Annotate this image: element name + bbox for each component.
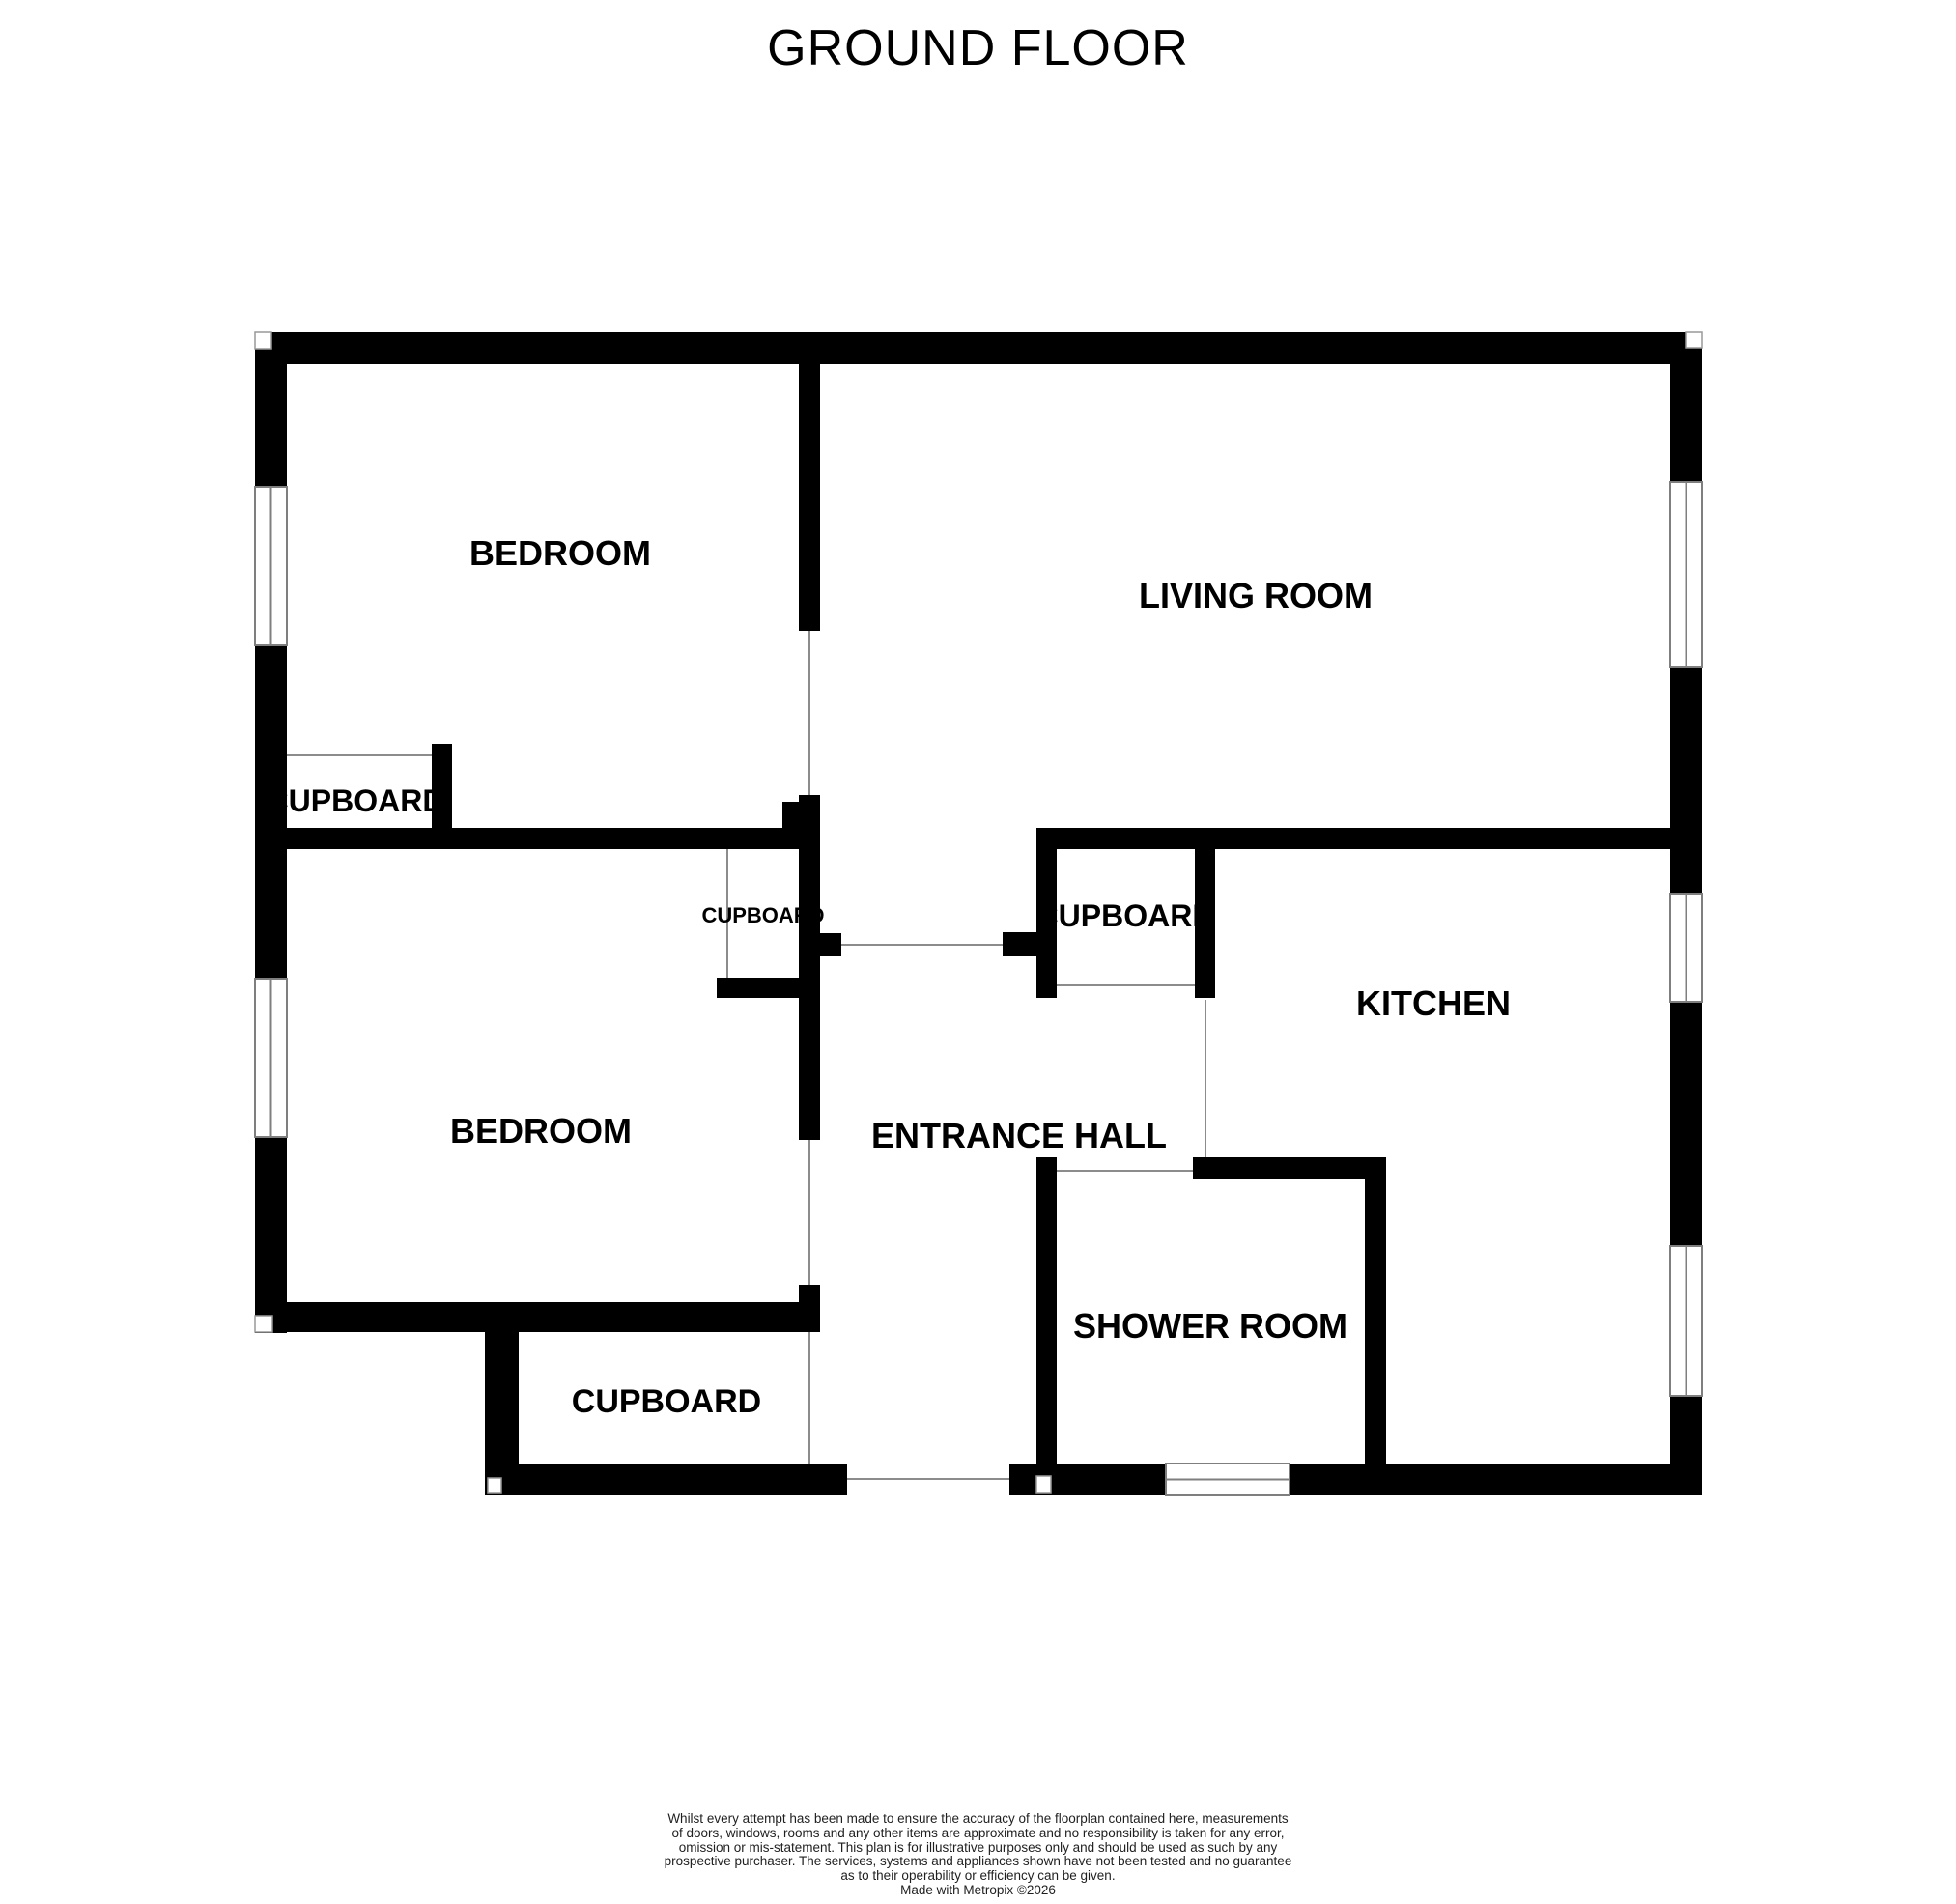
wall-bed2-bottom xyxy=(255,1302,819,1332)
wall-outer-bottom-c xyxy=(1290,1464,1702,1495)
corner-notch-notch-top-right xyxy=(1686,332,1702,348)
disclaimer-line: omission or mis-statement. This plan is … xyxy=(0,1841,1956,1856)
wall-cupboard-center-right xyxy=(1195,849,1215,998)
wall-outer-right-b xyxy=(1670,667,1702,894)
room-label-shower-room: SHOWER ROOM xyxy=(1073,1306,1347,1346)
wall-cupboard-top-left-stub xyxy=(432,744,452,828)
wall-outer-top xyxy=(255,332,1702,364)
wall-cupboard-center-left xyxy=(1036,849,1057,998)
wall-outer-right-c xyxy=(1670,1002,1702,1246)
disclaimer: Whilst every attempt has been made to en… xyxy=(0,1812,1956,1898)
wall-living-bottom-kitchen-top xyxy=(1036,828,1670,849)
disclaimer-line: prospective purchaser. The services, sys… xyxy=(0,1855,1956,1869)
wall-cupboard-small-bottom xyxy=(717,978,819,998)
corner-notch-notch-shower-corner xyxy=(1036,1476,1051,1493)
corner-notch-notch-top-left xyxy=(255,332,271,349)
wall-shower-left xyxy=(1036,1157,1057,1464)
room-label-bedroom-2: BEDROOM xyxy=(450,1111,632,1151)
wall-outer-left-a xyxy=(255,364,287,487)
floorplan-page: GROUND FLOOR BEDROOMLIVING ROOMCUPBOARDB… xyxy=(0,0,1956,1904)
wall-outer-bottom-a xyxy=(485,1464,847,1495)
disclaimer-line: Whilst every attempt has been made to en… xyxy=(0,1812,1956,1827)
wall-outer-right-a xyxy=(1670,364,1702,482)
wall-outer-bottom-b xyxy=(1009,1464,1166,1495)
room-label-cupboard-center: CUPBOARD xyxy=(1036,898,1215,933)
room-label-bedroom-1: BEDROOM xyxy=(469,533,651,573)
corner-notch-notch-bed2-corner xyxy=(255,1316,272,1332)
wall-bed1-bottom xyxy=(287,828,819,849)
wall-bed1-living-divider xyxy=(799,364,820,631)
wall-outer-left-b xyxy=(255,645,287,979)
room-label-kitchen: KITCHEN xyxy=(1356,983,1511,1023)
wall-shower-right xyxy=(1365,1157,1386,1464)
disclaimer-line: of doors, windows, rooms and any other i… xyxy=(0,1827,1956,1841)
floorplan-svg: BEDROOMLIVING ROOMCUPBOARDBEDROOMCUPBOAR… xyxy=(0,0,1956,1904)
room-label-cupboard-top-left: CUPBOARD xyxy=(267,783,445,818)
wall-cupboard-bottom-left-wall xyxy=(485,1332,519,1464)
room-label-entrance-hall: ENTRANCE HALL xyxy=(871,1116,1167,1155)
corner-notch-notch-cupboard-corner xyxy=(488,1478,501,1493)
wall-hall-door-block-left xyxy=(819,933,841,956)
disclaimer-line: as to their operability or efficiency ca… xyxy=(0,1869,1956,1884)
wall-hall-bed2-divider xyxy=(799,795,820,1140)
room-label-cupboard-bottom: CUPBOARD xyxy=(572,1383,761,1420)
wall-junction-post xyxy=(782,802,799,848)
metropix-credit: Made with Metropix ©2026 xyxy=(0,1884,1956,1898)
wall-shower-top xyxy=(1193,1157,1386,1179)
room-label-living-room: LIVING ROOM xyxy=(1139,576,1373,615)
wall-hall-door-block-right xyxy=(1003,932,1036,956)
